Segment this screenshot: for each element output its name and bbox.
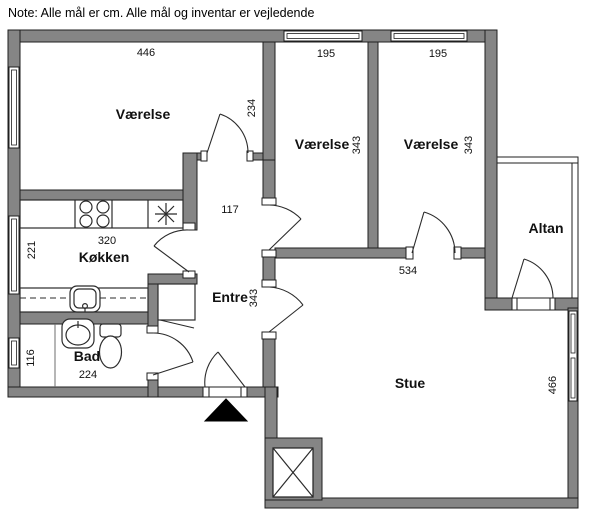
entrance-arrow-icon [205, 399, 247, 421]
kitchen-sink-icon [70, 286, 100, 312]
altan-railing-right [572, 163, 578, 298]
window-vaerelse1-left [9, 67, 19, 148]
dim-stue-width: 534 [399, 265, 417, 277]
dim-vaerelse2-width: 195 [317, 48, 335, 60]
label-vaerelse2: Værelse [295, 136, 350, 152]
wall-corridor-left-stub [183, 153, 197, 230]
dim-koekken-width: 320 [98, 235, 116, 247]
dim-bad-width: 224 [79, 369, 97, 381]
installation-shaft [273, 448, 313, 497]
window-bad-left [9, 338, 19, 368]
window-stue-right [569, 311, 577, 401]
label-vaerelse3: Værelse [404, 136, 459, 152]
closet-box [158, 284, 195, 320]
dim-entre-height: 343 [248, 289, 260, 307]
door-entre-stue [262, 280, 303, 339]
dim-entre-width: 117 [221, 204, 239, 216]
dim-vaerelse2-height: 343 [351, 136, 363, 154]
plan-note: Note: Alle mål er cm. Alle mål og invent… [8, 6, 314, 20]
dim-stue-height: 466 [547, 376, 559, 394]
window-vaerelse3-top [391, 31, 467, 41]
floor-plan: Note: Alle mål er cm. Alle mål og invent… [0, 0, 600, 515]
extractor-star-icon [155, 203, 177, 225]
door-koekken [154, 223, 195, 278]
door-main-entrance [203, 352, 247, 397]
window-koekken-left [9, 216, 19, 294]
dim-vaerelse3-height: 343 [463, 136, 475, 154]
dim-koekken-height: 221 [26, 241, 38, 259]
label-stue: Stue [395, 375, 426, 391]
wall-altan-bottom-a [485, 298, 512, 310]
label-bad: Bad [74, 348, 100, 364]
window-vaerelse2-top [284, 31, 362, 41]
dim-bad-height: 116 [25, 349, 37, 367]
label-vaerelse1: Værelse [116, 106, 171, 122]
door-bad [147, 326, 193, 380]
entre-closet [158, 284, 195, 328]
door-vaerelse1 [201, 114, 253, 161]
bathroom-sink-icon [62, 319, 94, 348]
wall-vaerelse1-vaerelse2 [263, 42, 275, 160]
wall-vaerelse1-koekken [20, 190, 190, 200]
wall-entre-stue-mid [263, 332, 275, 387]
dim-vaerelse3-width: 195 [429, 48, 447, 60]
label-altan: Altan [529, 220, 564, 236]
label-entre: Entre [212, 289, 248, 305]
toilet-icon [100, 324, 122, 368]
wall-right-upper [485, 30, 497, 310]
wall-vaerelse2-vaerelse3 [368, 42, 378, 258]
altan-railing-top [497, 157, 578, 163]
exterior-walls [8, 30, 578, 508]
dim-vaerelse1-width: 446 [137, 47, 155, 59]
door-vaerelse3 [406, 212, 461, 259]
wall-stue-top-a [275, 248, 412, 258]
door-altan [512, 259, 555, 310]
label-koekken: Køkken [79, 249, 130, 265]
closet-door-leaf [160, 320, 194, 328]
dim-vaerelse1-height: 234 [246, 99, 258, 117]
